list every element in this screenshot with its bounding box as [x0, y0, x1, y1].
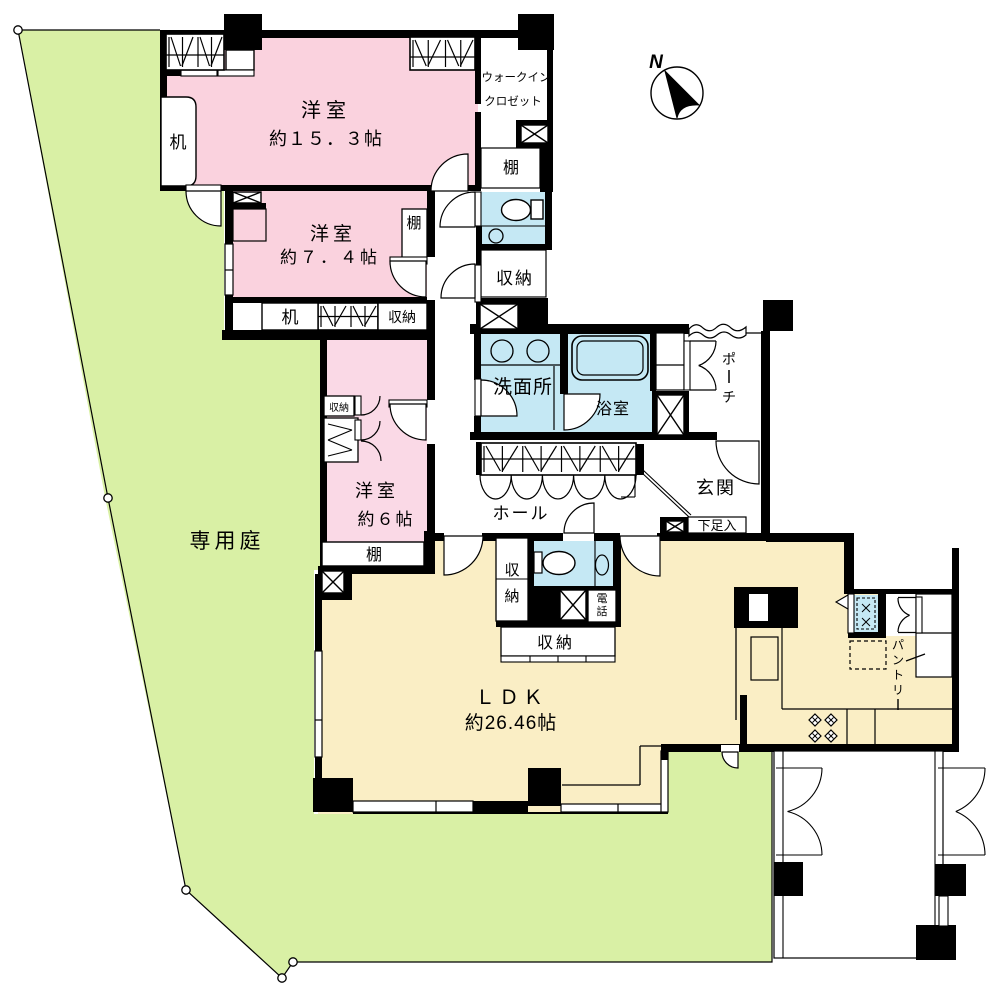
svg-text:クロゼット: クロゼット [484, 95, 542, 108]
svg-text:専用庭: 専用庭 [190, 530, 265, 553]
svg-text:話: 話 [597, 604, 608, 618]
svg-text:洋室: 洋室 [355, 481, 399, 501]
svg-text:洗面所: 洗面所 [493, 376, 553, 398]
svg-text:棚: 棚 [503, 159, 519, 177]
svg-text:電: 電 [597, 592, 608, 605]
svg-text:浴室: 浴室 [596, 400, 630, 418]
svg-text:棚: 棚 [366, 546, 382, 564]
svg-text:収納: 収納 [329, 401, 349, 414]
svg-text:机: 机 [170, 133, 187, 152]
svg-text:ＬＤＫ: ＬＤＫ [475, 687, 547, 709]
svg-text:机: 机 [282, 308, 299, 327]
svg-text:収納: 収納 [537, 634, 575, 652]
svg-text:リ: リ [892, 683, 904, 697]
svg-text:洋室: 洋室 [310, 223, 356, 245]
svg-text:納: 納 [504, 588, 519, 605]
svg-text:玄関: 玄関 [696, 478, 736, 498]
svg-text:下足入: 下足入 [697, 518, 736, 533]
svg-text:収納: 収納 [496, 269, 534, 288]
svg-text:収納: 収納 [388, 309, 416, 325]
svg-text:洋室: 洋室 [301, 99, 351, 122]
svg-text:棚: 棚 [406, 215, 421, 232]
svg-text:約26.46帖: 約26.46帖 [465, 712, 558, 734]
svg-text:パ: パ [892, 638, 904, 652]
svg-text:ウォークイン: ウォークイン [482, 71, 551, 84]
svg-text:約７．４帖: 約７．４帖 [280, 248, 380, 267]
svg-text:チ: チ [722, 389, 736, 405]
svg-text:ポ: ポ [722, 351, 736, 367]
svg-text:収: 収 [504, 562, 519, 579]
svg-text:約６帖: 約６帖 [358, 510, 415, 529]
svg-text:N: N [649, 52, 664, 73]
svg-text:ン: ン [892, 653, 904, 667]
svg-text:ト: ト [892, 668, 904, 682]
svg-text:ホール: ホール [493, 504, 550, 523]
svg-text:約１５．３帖: 約１５．３帖 [269, 129, 383, 149]
